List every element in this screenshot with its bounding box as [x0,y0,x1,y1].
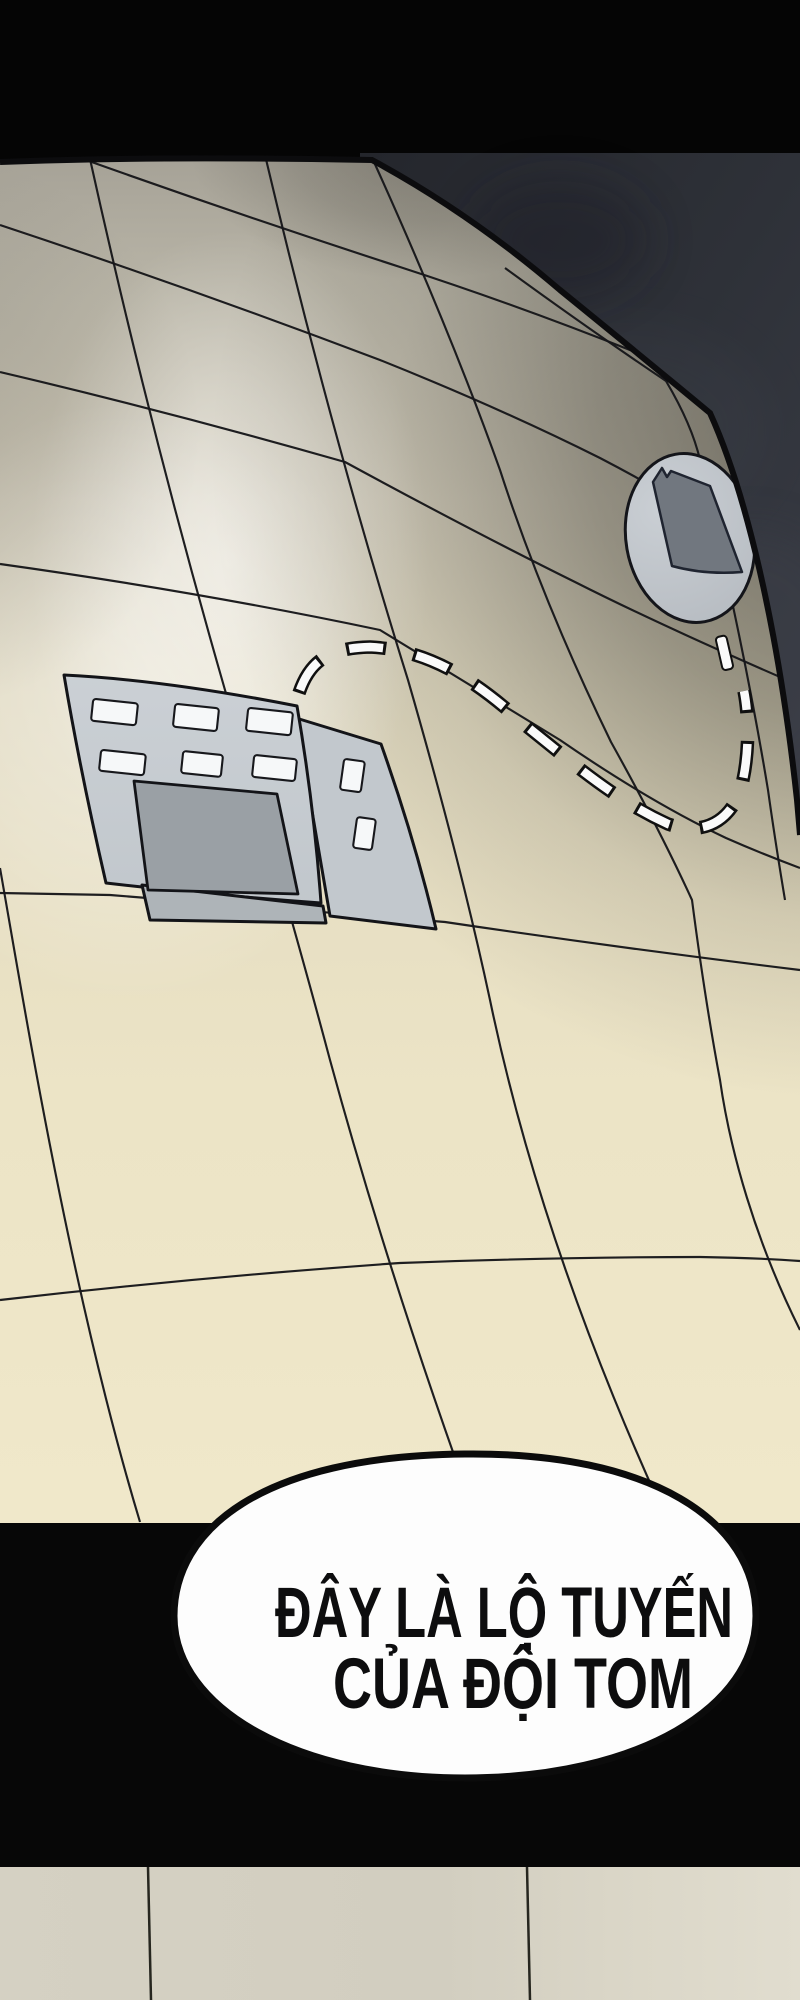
svg-text:ĐÂY LÀ LỘ TUYẾN: ĐÂY LÀ LỘ TUYẾN [275,1573,733,1653]
svg-text:CỦA ĐỘI TOM: CỦA ĐỘI TOM [333,1644,693,1724]
